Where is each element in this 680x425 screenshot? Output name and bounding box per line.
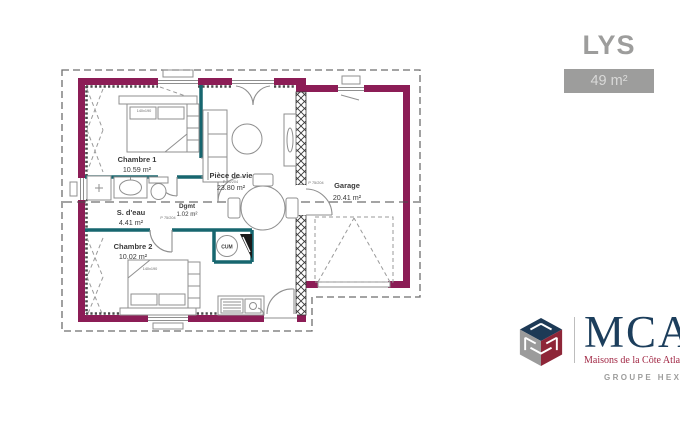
room-label-chambre1: Chambre 1 xyxy=(118,155,157,164)
room-area-chambre2: 10.02 m² xyxy=(119,252,148,261)
window-garage xyxy=(338,76,364,100)
area-badge-value: 49 m² xyxy=(590,73,627,89)
brand-group: GROUPE HEXAOM xyxy=(604,373,680,382)
brand-name: MCA xyxy=(584,311,680,353)
brand-tagline: Maisons de la Côte Atlantique xyxy=(584,355,680,366)
kitchen-counter xyxy=(218,296,264,315)
room-area-chambre1: 10.59 m² xyxy=(123,165,152,174)
plan-title: LYS xyxy=(564,30,654,61)
room-area-sdeau: 4.41 m² xyxy=(119,218,144,227)
bed-size-label: 140x190 xyxy=(143,267,158,271)
logo-divider xyxy=(574,317,575,363)
garage-door xyxy=(315,217,393,287)
page: Chambre 1 10.59 m² S. d'eau 4.41 m² Dgmt… xyxy=(0,0,680,425)
entrance-door xyxy=(264,289,297,323)
window-chambre1 xyxy=(158,70,198,99)
door-size-label: P 75/204 xyxy=(160,216,175,220)
bathroom-fixtures xyxy=(87,176,168,200)
door-size-label: P 75/204 xyxy=(308,181,323,185)
door-size-label: P 75/204 xyxy=(223,180,238,184)
room-label-garage: Garage xyxy=(334,181,360,190)
mca-logo: MCA Maisons de la Côte Atlantique GROUPE… xyxy=(517,311,680,382)
room-label-chambre2: Chambre 2 xyxy=(114,242,153,251)
roof-overhang-outline xyxy=(62,70,420,331)
living-furniture xyxy=(203,110,298,230)
room-area-degagement: 1.02 m² xyxy=(177,211,198,218)
window-bathroom xyxy=(70,178,86,200)
room-label-degagement: Dgmt xyxy=(179,203,196,210)
room-label-piece-de-vie: Pièce de vie xyxy=(210,171,253,180)
window-french-door xyxy=(232,77,274,105)
logo-text: MCA Maisons de la Côte Atlantique GROUPE… xyxy=(584,311,680,382)
room-label-sdeau: S. d'eau xyxy=(117,208,146,217)
bed-size-label: 140x190 xyxy=(137,109,152,113)
room-area-piece-de-vie: 23.80 m² xyxy=(217,183,246,192)
area-badge: 49 m² xyxy=(564,69,654,93)
water-heater-label: CUM xyxy=(221,245,232,251)
room-area-garage: 20.41 m² xyxy=(333,193,362,202)
mca-cube-icon xyxy=(517,316,565,368)
